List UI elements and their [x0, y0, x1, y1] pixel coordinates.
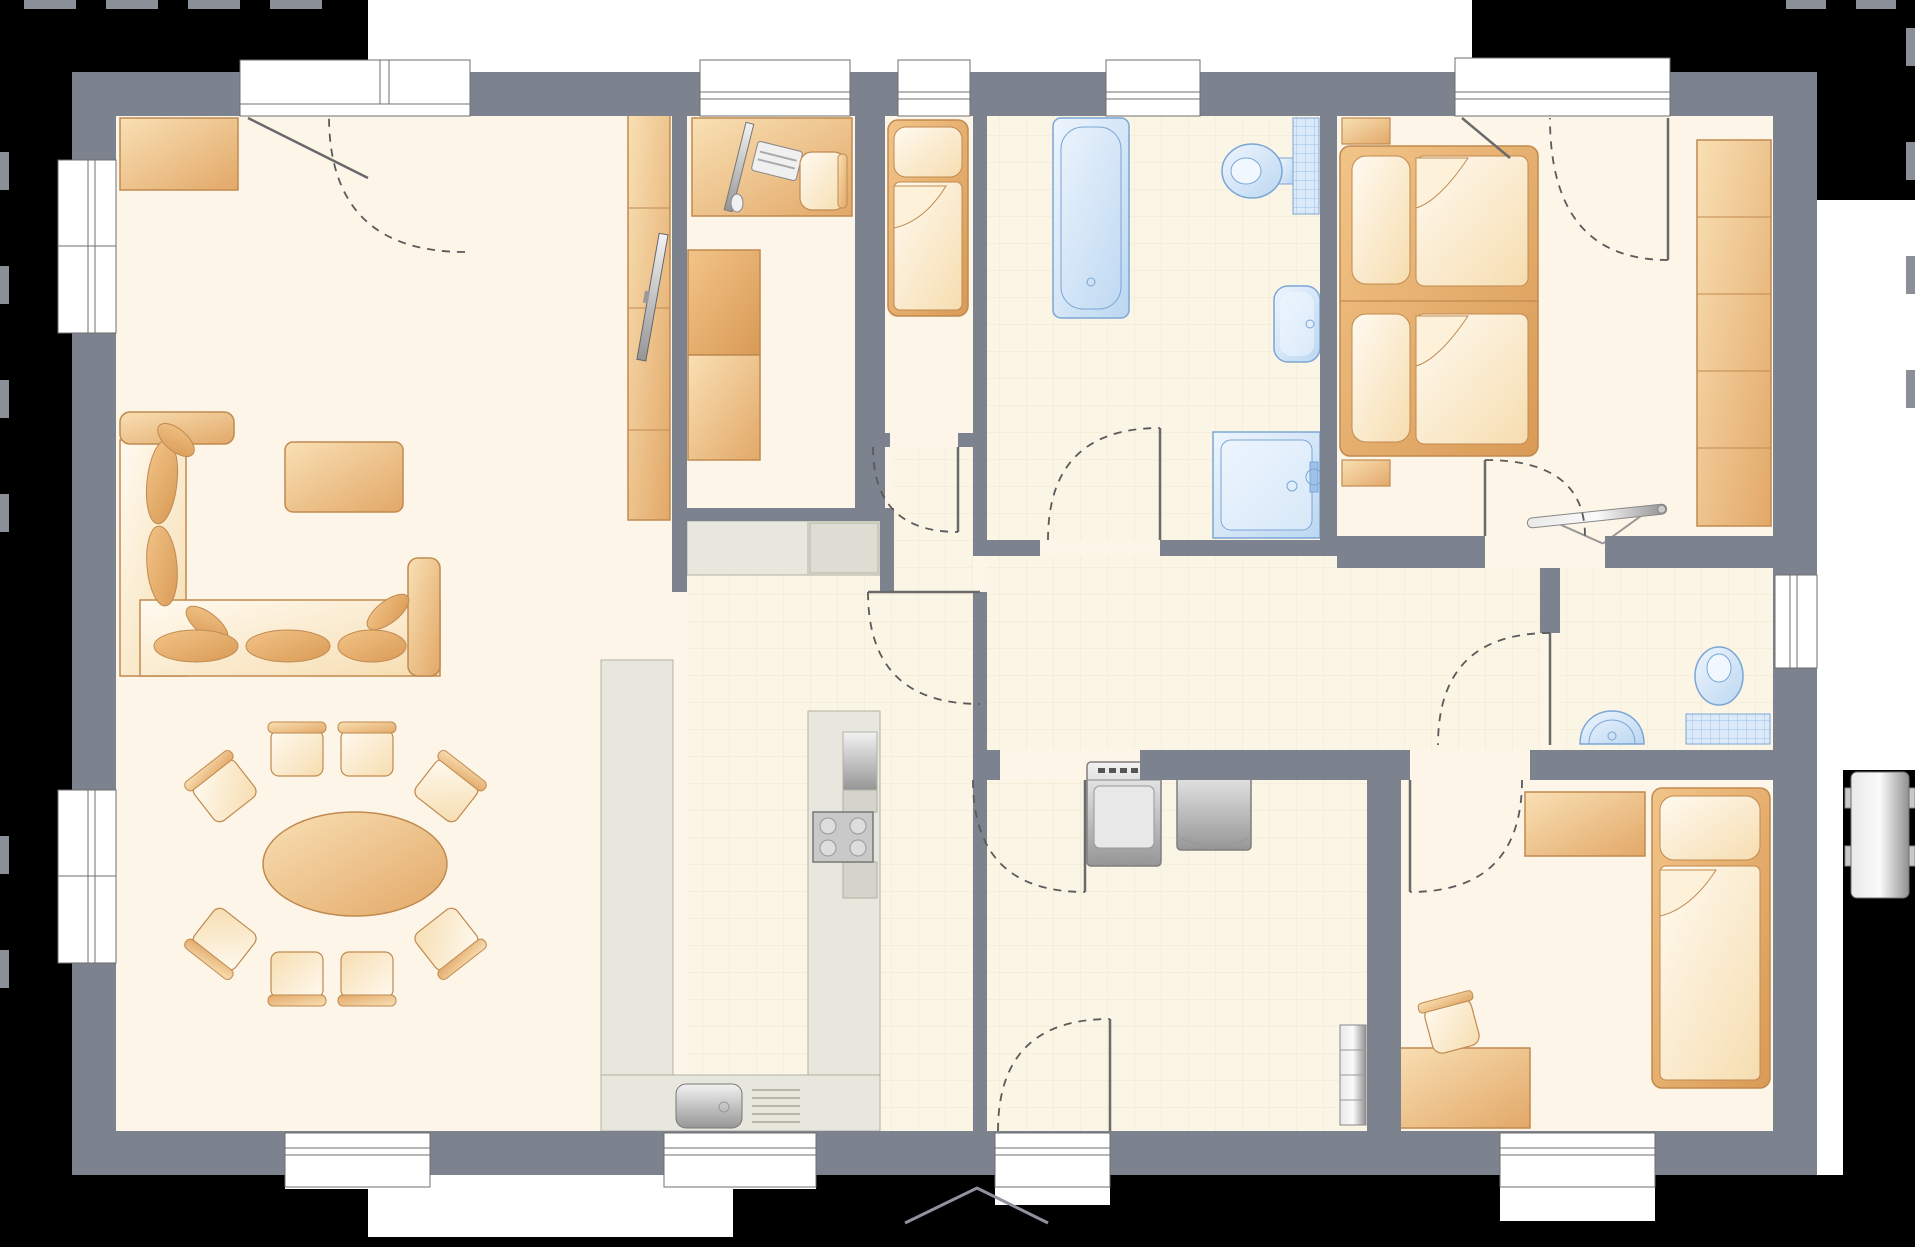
- master-nightstand: [1342, 460, 1390, 486]
- outside-white-areas-part: [1817, 770, 1847, 1175]
- sideboard: [120, 118, 238, 190]
- bath-cistern-tiles-part: [1293, 118, 1319, 214]
- neighbor-plan-dashes-part: [1906, 370, 1915, 408]
- window: [58, 790, 116, 963]
- window: [898, 60, 970, 116]
- wc-toilet: [1695, 647, 1743, 705]
- dining-table-part: [263, 812, 447, 916]
- bath-toilet-part: [1231, 158, 1261, 184]
- neighbor-plan-dashes-part: [0, 152, 9, 190]
- kid-bed-part: [894, 127, 962, 177]
- window-part: [898, 60, 970, 116]
- bedroom2-bed: [1652, 788, 1770, 1088]
- neighbor-plan-dashes-part: [1786, 0, 1826, 9]
- neighbor-plan-dashes-part: [0, 836, 9, 874]
- neighbor-plan-dashes-part: [1906, 28, 1915, 66]
- office-shelves: [688, 250, 760, 460]
- kitchen-counter-right-part: [843, 862, 877, 898]
- dining-chair: [268, 722, 326, 776]
- kitchen-counter-left: [601, 660, 673, 1131]
- walls-inner-part: [885, 433, 890, 447]
- window: [58, 160, 116, 333]
- washing-machine-part: [1131, 768, 1138, 773]
- kid-bed: [888, 120, 968, 316]
- shower: [1213, 432, 1322, 538]
- wardrobe-part: [1697, 140, 1771, 526]
- window: [285, 1133, 430, 1187]
- neighbor-plan-dashes-part: [1906, 142, 1915, 180]
- walls-inner-part: [1540, 568, 1560, 633]
- dining-chair-part: [271, 952, 323, 998]
- dining-chair-part: [271, 730, 323, 776]
- bath-cistern-tiles: [1293, 118, 1319, 214]
- tiled-floor-hall-part: [894, 447, 973, 592]
- walls-inner-part: [672, 116, 687, 592]
- office-chair: [800, 152, 847, 210]
- bedroom2-desk: [1390, 1048, 1530, 1128]
- walls-inner-part: [855, 116, 885, 508]
- neighbor-plan-dashes-part: [0, 266, 9, 304]
- window-part: [700, 60, 850, 116]
- kitchen-counter-top: [687, 521, 880, 575]
- walls-inner-part: [1320, 116, 1337, 556]
- bath-sink-part: [1280, 292, 1314, 356]
- ironing-board-part: [1657, 505, 1666, 514]
- neighbor-plan-dashes-part: [24, 0, 76, 9]
- bedroom2-bed-part: [1660, 796, 1760, 860]
- dining-chair-part: [341, 952, 393, 998]
- neighbor-plan-dashes-part: [0, 380, 9, 418]
- kitchen-counter-right: [808, 711, 880, 1131]
- bedroom2-dresser-part: [1525, 792, 1645, 856]
- window: [664, 1133, 816, 1187]
- dining-chair-part: [268, 995, 326, 1006]
- master-nightstand-part: [1342, 460, 1390, 486]
- bedroom2-dresser: [1525, 792, 1645, 856]
- wc-toilet-part: [1707, 654, 1731, 682]
- bath-sink: [1274, 286, 1320, 362]
- walls-inner-part: [1160, 540, 1337, 556]
- dining-chair-part: [338, 722, 396, 733]
- tiled-floor-hall-part: [1337, 568, 1540, 750]
- window-part: [285, 1133, 430, 1187]
- kitchen-counter-right-part: [843, 732, 877, 790]
- walls-inner-part: [1140, 750, 1410, 780]
- back-door-niche: [995, 1133, 1110, 1187]
- walls-inner-part: [687, 508, 894, 521]
- master-bed: [1340, 146, 1538, 456]
- kitchen-stove-part: [850, 818, 866, 834]
- kitchen-stove-part: [813, 812, 873, 862]
- dining-chair: [338, 722, 396, 776]
- floor-plan-page: [0, 0, 1915, 1247]
- walls-inner-part: [1605, 536, 1773, 568]
- outdoor-tank: [1843, 770, 1915, 1247]
- shower-part: [1310, 462, 1318, 492]
- back-door-niche-part: [995, 1133, 1110, 1187]
- walls-inner-part: [987, 540, 1040, 556]
- window: [1775, 575, 1817, 668]
- window: [1500, 1133, 1655, 1187]
- corner-sofa-part: [246, 630, 330, 662]
- dining-chair: [268, 952, 326, 1006]
- dining-chair: [338, 952, 396, 1006]
- bedroom2-desk-part: [1390, 1048, 1530, 1128]
- washing-machine-part: [1109, 768, 1116, 773]
- kitchen-sink-part: [676, 1084, 742, 1128]
- window-part: [1500, 1133, 1655, 1187]
- shower-part: [1221, 440, 1312, 530]
- kitchen-counter-left-part: [601, 660, 673, 1131]
- bathtub-part: [1053, 118, 1129, 318]
- wc-cistern-tiles-part: [1686, 714, 1770, 744]
- window-part: [664, 1133, 816, 1187]
- neighbor-plan-dashes-part: [106, 0, 158, 9]
- kitchen-counter-right-part: [843, 790, 877, 812]
- corner-sofa-part: [408, 558, 440, 676]
- washing-machine-part: [1098, 768, 1105, 773]
- master-bed-part: [1352, 156, 1410, 284]
- office-chair-part: [838, 154, 847, 208]
- office-computer-part: [731, 194, 743, 212]
- dining-table: [263, 812, 447, 916]
- walls-inner-part: [973, 750, 1000, 780]
- kitchen-stove-part: [850, 840, 866, 856]
- radiator: [1340, 1025, 1366, 1125]
- coffee-table: [285, 442, 403, 512]
- neighbor-plan-dashes-part: [0, 950, 9, 988]
- kitchen-stove: [813, 812, 873, 862]
- window-part: [1775, 575, 1817, 668]
- dining-chair-part: [268, 722, 326, 733]
- coffee-table-part: [285, 442, 403, 512]
- walls-inner-part: [880, 521, 894, 592]
- tiled-floor-hall-part: [987, 556, 1340, 750]
- master-nightstand-part: [1342, 118, 1390, 144]
- neighbor-plan-dashes-part: [1906, 256, 1915, 294]
- kitchen-stove-part: [820, 818, 836, 834]
- entrance-door-niche: [240, 60, 470, 116]
- wc-cistern-tiles: [1686, 714, 1770, 744]
- master-bed-part: [1352, 314, 1410, 442]
- dining-chair-part: [338, 995, 396, 1006]
- washing-machine-part: [1120, 768, 1127, 773]
- window: [1106, 60, 1200, 116]
- kitchen-counter-top-part: [810, 523, 878, 573]
- washing-machine-part: [1094, 786, 1154, 848]
- corner-sofa-part: [338, 630, 406, 662]
- outside-white-areas-part: [1817, 200, 1915, 770]
- neighbor-plan-dashes-part: [1856, 0, 1896, 9]
- kitchen-stove-part: [820, 840, 836, 856]
- neighbor-plan-dashes-part: [270, 0, 322, 9]
- window-part: [1106, 60, 1200, 116]
- office-shelves-part: [688, 250, 760, 355]
- neighbor-plan-dashes-part: [0, 494, 9, 532]
- office-shelves-part: [688, 355, 760, 460]
- walls-inner-part: [1337, 536, 1485, 568]
- corner-sofa-part: [154, 630, 238, 662]
- kitchen-sink: [676, 1084, 800, 1128]
- sideboard-part: [120, 118, 238, 190]
- wardrobe: [1697, 140, 1771, 526]
- terrace-door-niche-part: [1455, 58, 1670, 116]
- walls-inner-part: [1530, 750, 1773, 780]
- master-nightstand: [1342, 118, 1390, 144]
- window: [700, 60, 850, 116]
- neighbor-plan-dashes-part: [188, 0, 240, 9]
- dining-chair-part: [341, 730, 393, 776]
- walls-inner-part: [973, 116, 987, 556]
- outdoor-tank-part: [1851, 772, 1909, 898]
- bathtub: [1053, 118, 1129, 318]
- walls-inner-part: [973, 592, 987, 1131]
- walls-inner-part: [1367, 780, 1401, 1131]
- entrance-door-niche-part: [240, 60, 470, 116]
- terrace-door-niche: [1455, 58, 1670, 116]
- floor-plan-canvas: [0, 0, 1915, 1247]
